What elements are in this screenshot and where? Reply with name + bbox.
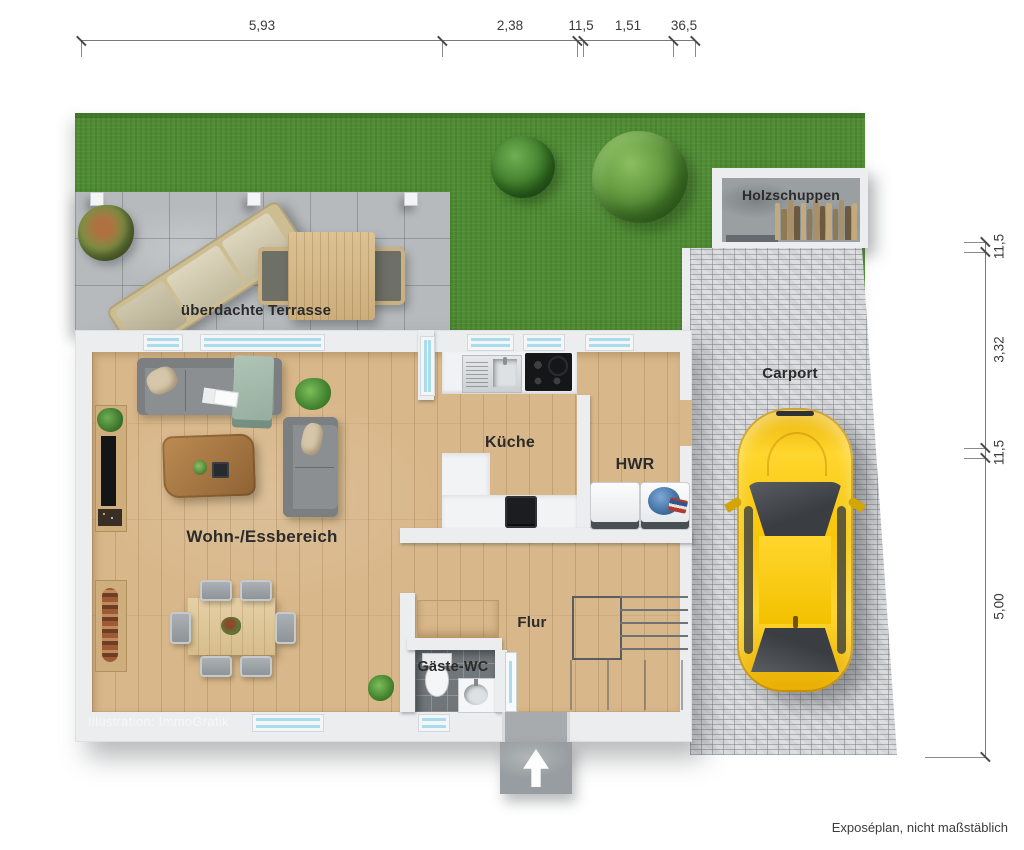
- room-label-wohn-essbereich: Wohn-/Essbereich: [182, 527, 342, 547]
- terrace-post: [90, 192, 104, 206]
- entrance-opening: [502, 712, 570, 742]
- tree-small: [491, 136, 555, 198]
- tv: [101, 436, 116, 506]
- car-side-glass: [837, 506, 846, 654]
- washbasin: [464, 684, 488, 705]
- dim-label-right-4: 5,00: [992, 575, 1007, 639]
- stair-treads-lower: [570, 660, 688, 710]
- room-label-kueche: Küche: [470, 434, 550, 452]
- dining-chair: [200, 580, 232, 601]
- car-rear-window: [751, 628, 839, 672]
- dim-label-right-3: 11,5: [992, 421, 1007, 485]
- window-living-1: [143, 334, 183, 351]
- dim-ext: [673, 41, 674, 57]
- dim-label-right-2: 3,32: [992, 318, 1007, 382]
- car-antenna: [793, 616, 798, 628]
- dim-line-top: [81, 40, 695, 41]
- tree-big: [592, 131, 688, 223]
- dim-ext: [442, 41, 443, 57]
- cooktop: [525, 353, 572, 391]
- shed-floor: Holzschuppen: [722, 178, 860, 242]
- coffee-machine: [505, 496, 537, 528]
- terrace: überdachte Terrasse: [75, 192, 450, 333]
- terrace-post: [247, 192, 261, 206]
- sink-tap: [503, 357, 507, 365]
- sofa-seam: [185, 370, 186, 411]
- wc-door: [505, 652, 517, 712]
- coffee-table: [162, 433, 256, 498]
- terrace-door: [200, 334, 325, 351]
- dim-line-right: [985, 242, 986, 757]
- plant-on-lowboard: [97, 408, 123, 432]
- wall-wc-north: [407, 638, 502, 650]
- hall-wardrobe: [417, 600, 499, 640]
- shed-opening: [726, 235, 778, 242]
- dim-label-top-1: 5,93: [230, 18, 294, 33]
- dryer: [640, 482, 690, 530]
- stair-treads-upper: [620, 596, 688, 658]
- dining-chair: [240, 580, 272, 601]
- dining-chair: [240, 656, 272, 677]
- car: [737, 408, 853, 692]
- stairwell-railing: [572, 596, 622, 660]
- dining-chair: [275, 612, 296, 644]
- washing-machine: [590, 482, 640, 530]
- room-label-carport: Carport: [690, 365, 890, 382]
- room-label-flur: Flur: [502, 614, 562, 631]
- dim-ext: [964, 458, 985, 459]
- wc-door-glass: [509, 661, 512, 703]
- dim-ext: [925, 757, 985, 758]
- wood-shed: Holzschuppen: [712, 168, 868, 248]
- wall-hall-north: [400, 528, 692, 543]
- watermark: Illustration: ImmoGrafik: [88, 714, 229, 729]
- window-kitchen-1: [467, 334, 514, 351]
- dim-label-top-5: 36,5: [652, 18, 716, 33]
- kitchen-sink: [462, 355, 522, 393]
- car-side-glass: [744, 506, 753, 654]
- window-wc: [418, 714, 450, 732]
- table-centerpiece: [221, 617, 241, 635]
- entrance-step: [500, 742, 572, 794]
- window-dining: [252, 714, 324, 732]
- dim-ext: [577, 41, 578, 57]
- entry-arrow-icon: [523, 749, 549, 787]
- dim-ext: [964, 448, 985, 449]
- car-roof: [759, 536, 831, 624]
- room-label-hwr: HWR: [598, 456, 672, 474]
- firewood-stack: [775, 200, 857, 240]
- sink-drainer: [466, 359, 488, 387]
- wall-hall-west: [400, 593, 415, 712]
- dim-label-right-1: 11,5: [992, 215, 1007, 279]
- plant-on-table: [193, 460, 207, 475]
- window-hwr: [585, 334, 634, 351]
- dim-label-top-2: 2,38: [478, 18, 542, 33]
- window-corner: [420, 336, 435, 396]
- room-label-terrasse: überdachte Terrasse: [146, 302, 366, 319]
- room-label-holzschuppen: Holzschuppen: [722, 187, 860, 203]
- pan: [548, 356, 568, 376]
- kitchen-counter-top: [442, 352, 577, 394]
- house: Küche HWR Flur Gäste-WC: [75, 330, 692, 742]
- sofa-seam: [295, 467, 334, 468]
- dim-ext: [964, 252, 985, 253]
- floorplan-canvas: 5,93 2,38 11,5 1,51 36,5 11,5 3,32 11,5 …: [0, 0, 1024, 850]
- decor-runner: [102, 588, 118, 662]
- footer-note: Exposéplan, nicht maßstäblich: [832, 820, 1008, 835]
- terrace-post: [404, 192, 418, 206]
- dim-ext: [964, 242, 985, 243]
- dim-ext: [81, 41, 82, 57]
- dining-chair: [170, 612, 191, 644]
- room-label-gaeste-wc: Gäste-WC: [405, 659, 501, 675]
- washbasin-tap: [474, 679, 478, 686]
- wall-kitchen-hwr: [577, 395, 590, 530]
- tablet: [212, 462, 229, 478]
- dining-chair: [200, 656, 232, 677]
- window-kitchen-2: [523, 334, 565, 351]
- carport-paving: Carport: [690, 248, 902, 755]
- bush: [78, 205, 134, 261]
- dim-ext: [583, 41, 584, 57]
- hwr-side-door-opening: [680, 400, 692, 446]
- dim-ext: [695, 41, 696, 57]
- car-grille: [776, 411, 813, 416]
- dim-label-top-4: 1,51: [596, 18, 660, 33]
- hifi-unit: [98, 509, 122, 526]
